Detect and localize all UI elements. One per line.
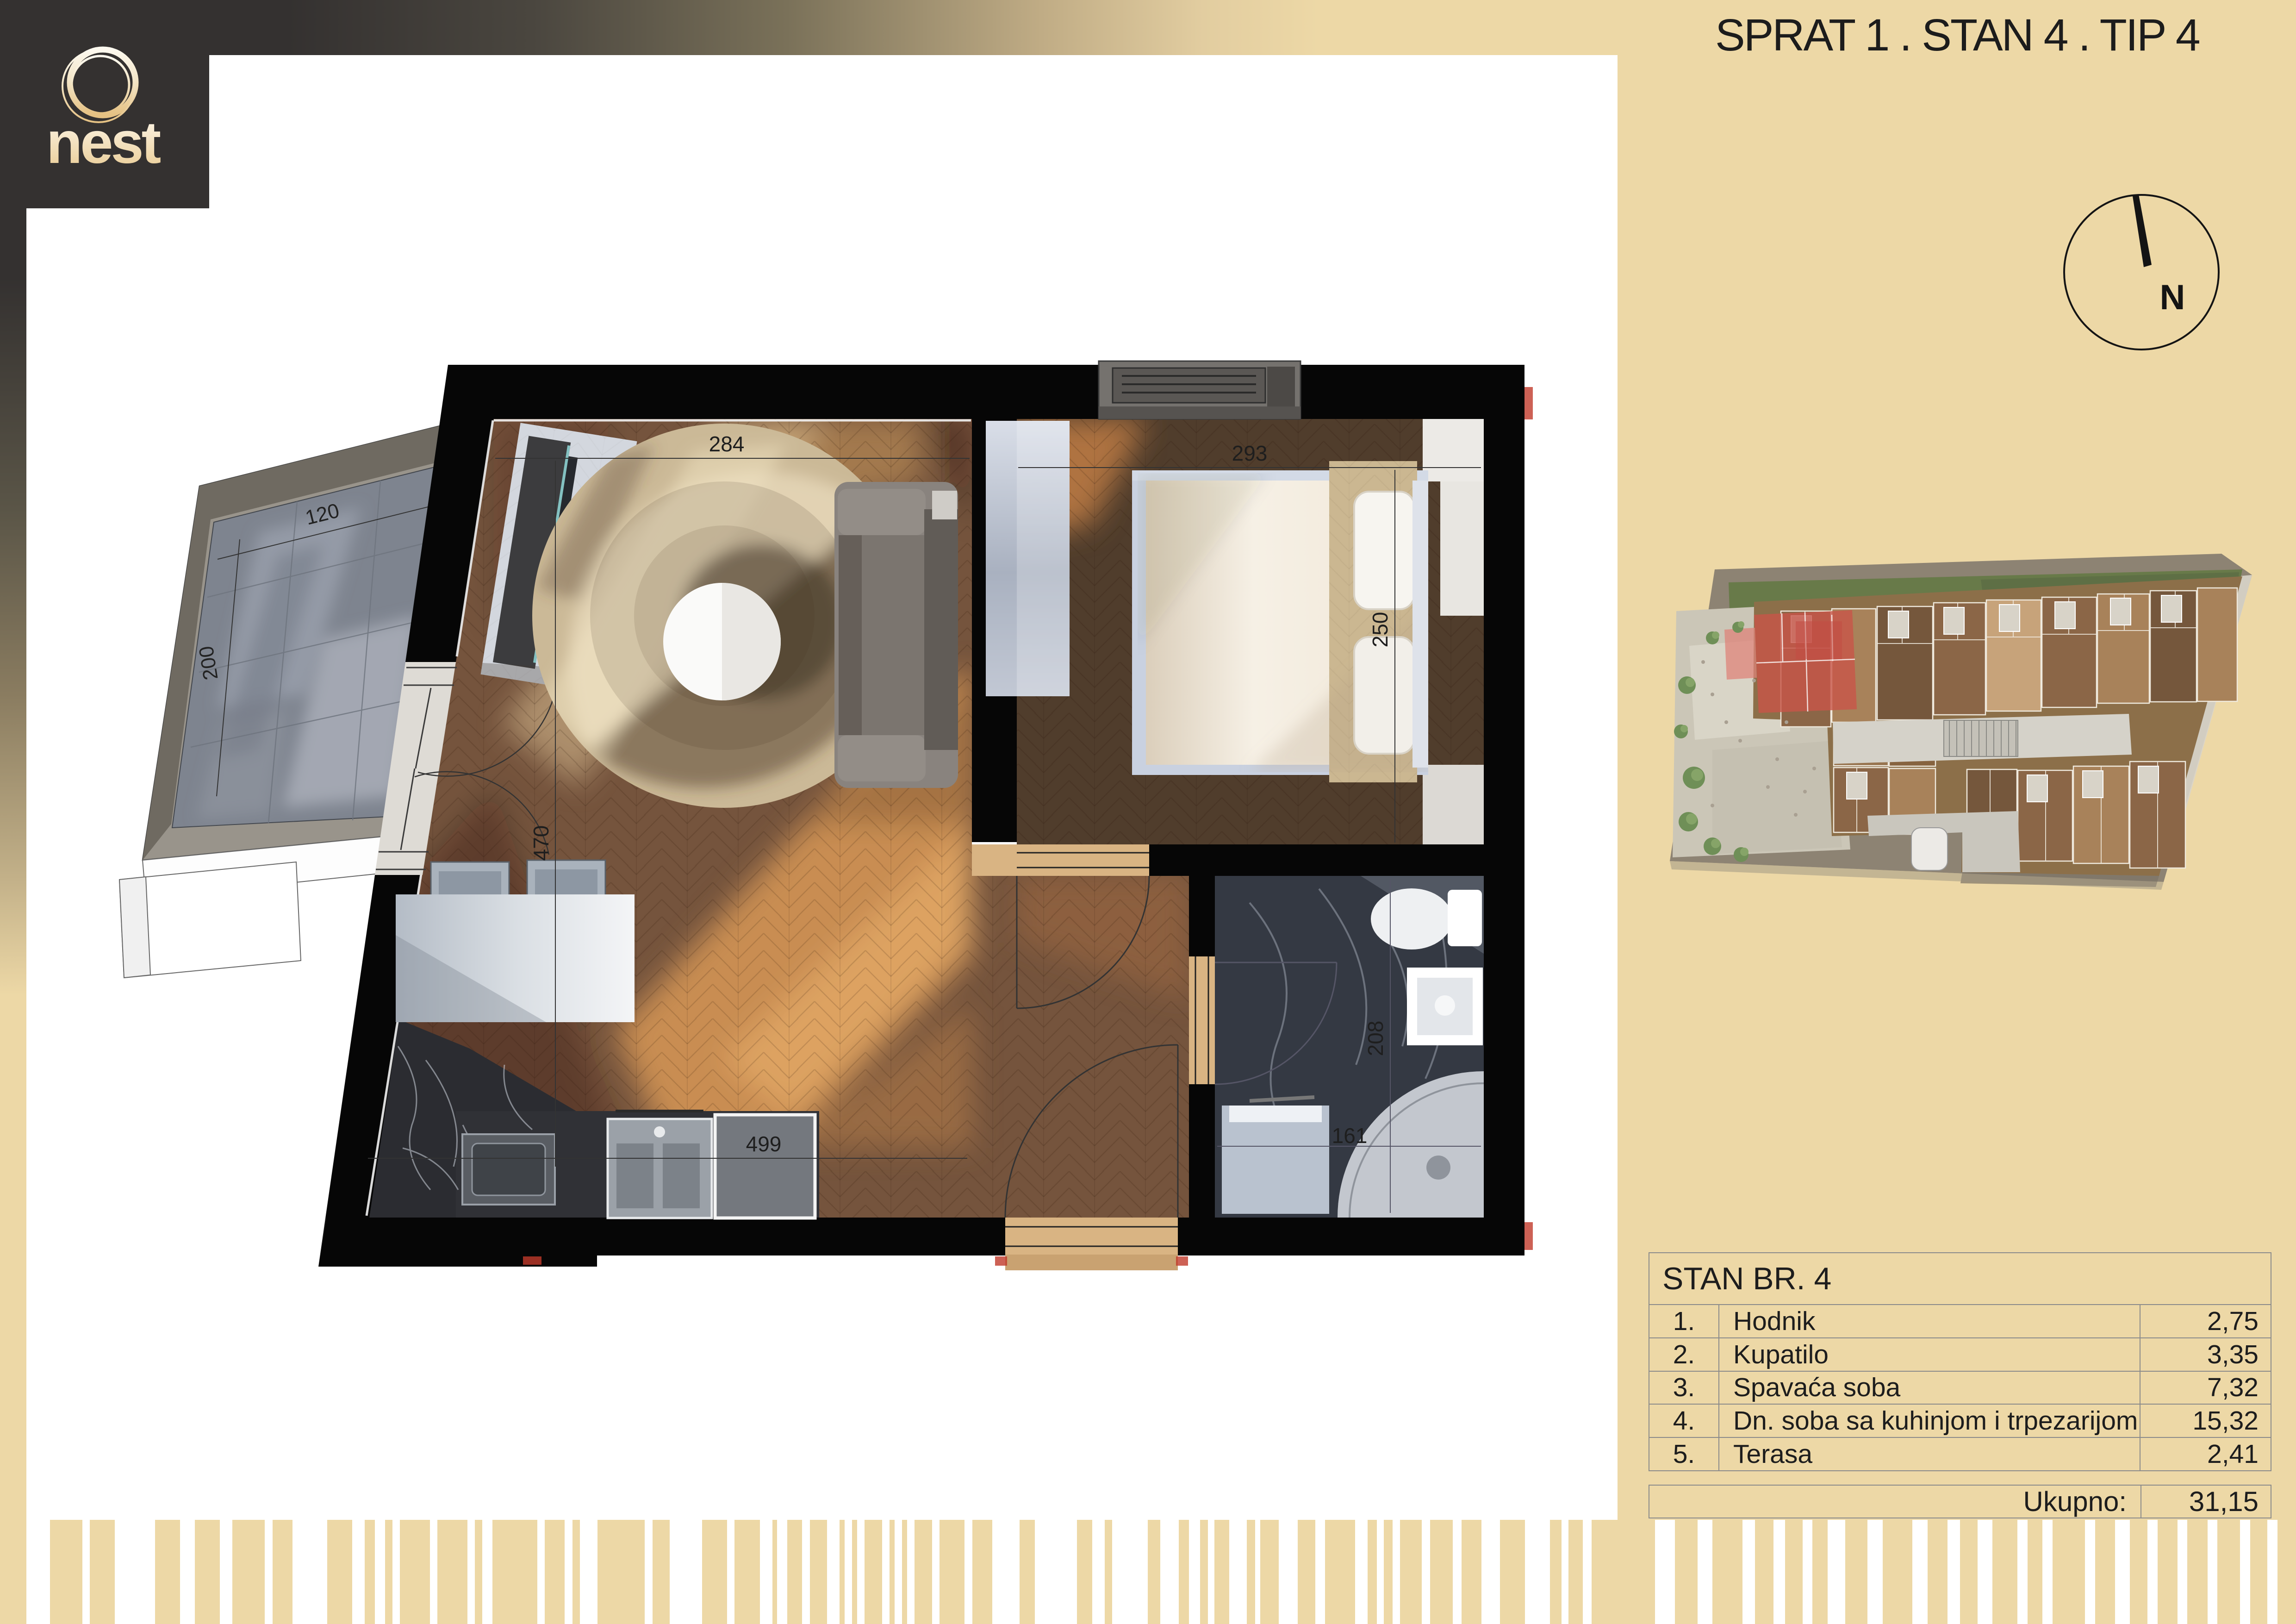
svg-text:161: 161 bbox=[1332, 1124, 1368, 1148]
svg-text:N: N bbox=[2160, 278, 2185, 317]
svg-text:470: 470 bbox=[529, 825, 553, 861]
svg-text:293: 293 bbox=[1232, 441, 1268, 465]
svg-text:250: 250 bbox=[1368, 612, 1392, 648]
svg-text:284: 284 bbox=[709, 432, 745, 456]
svg-text:499: 499 bbox=[746, 1132, 782, 1156]
svg-text:208: 208 bbox=[1363, 1021, 1388, 1056]
